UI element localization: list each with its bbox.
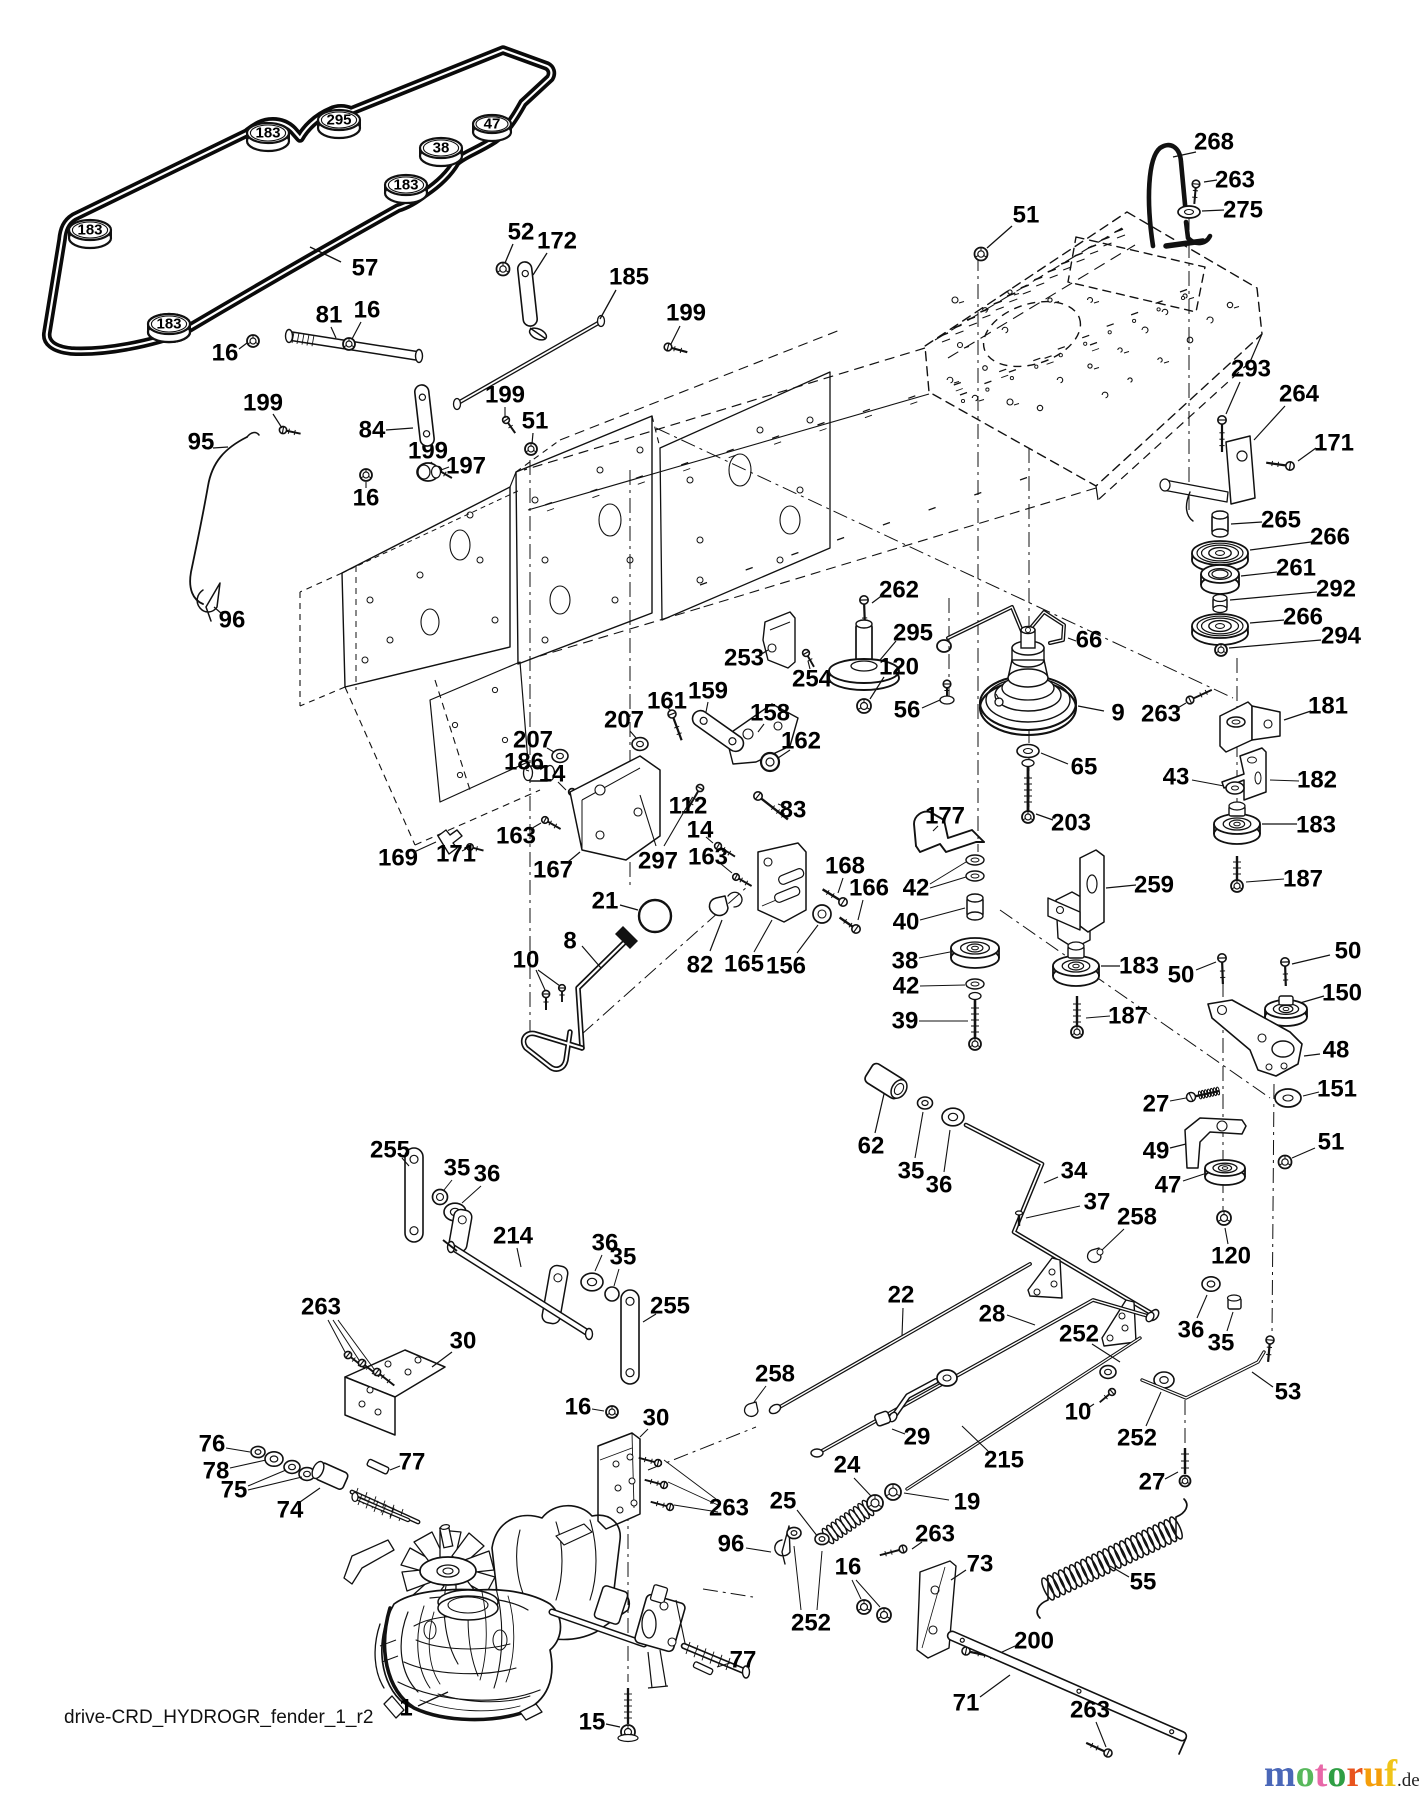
- svg-text:172: 172: [537, 228, 577, 255]
- svg-text:177: 177: [925, 803, 965, 830]
- svg-text:252: 252: [1059, 1321, 1099, 1348]
- svg-text:167: 167: [533, 857, 573, 884]
- svg-text:182: 182: [1297, 767, 1337, 794]
- svg-text:16: 16: [353, 485, 380, 512]
- svg-text:35: 35: [898, 1158, 925, 1185]
- svg-text:258: 258: [1117, 1204, 1157, 1231]
- svg-text:34: 34: [1061, 1158, 1088, 1185]
- svg-text:74: 74: [277, 1497, 304, 1524]
- svg-text:120: 120: [1211, 1243, 1251, 1270]
- svg-text:62: 62: [858, 1133, 885, 1160]
- svg-text:150: 150: [1322, 980, 1362, 1007]
- svg-text:252: 252: [1117, 1425, 1157, 1452]
- svg-text:183: 183: [77, 222, 102, 239]
- svg-text:28: 28: [979, 1301, 1006, 1328]
- svg-text:187: 187: [1108, 1003, 1148, 1030]
- svg-text:214: 214: [493, 1223, 534, 1250]
- svg-text:168: 168: [825, 853, 865, 880]
- svg-text:265: 265: [1261, 507, 1301, 534]
- svg-text:266: 266: [1310, 524, 1350, 551]
- svg-text:81: 81: [316, 302, 343, 329]
- svg-text:263: 263: [1141, 701, 1181, 728]
- svg-text:50: 50: [1168, 962, 1195, 989]
- svg-text:48: 48: [1323, 1037, 1350, 1064]
- svg-text:53: 53: [1275, 1379, 1302, 1406]
- svg-text:197: 197: [446, 453, 486, 480]
- svg-text:199: 199: [243, 390, 283, 417]
- svg-text:261: 261: [1276, 555, 1316, 582]
- svg-text:183: 183: [255, 125, 280, 142]
- svg-text:156: 156: [766, 953, 806, 980]
- svg-text:16: 16: [835, 1554, 862, 1581]
- svg-text:163: 163: [496, 823, 536, 850]
- svg-text:52: 52: [508, 219, 535, 246]
- svg-text:297: 297: [638, 848, 678, 875]
- svg-text:77: 77: [730, 1647, 757, 1674]
- svg-text:16: 16: [212, 340, 239, 367]
- svg-text:30: 30: [450, 1328, 477, 1355]
- svg-text:motoruf.de: motoruf.de: [1264, 1753, 1420, 1795]
- svg-text:47: 47: [1155, 1172, 1182, 1199]
- svg-text:38: 38: [433, 140, 450, 157]
- svg-text:43: 43: [1163, 764, 1190, 791]
- svg-text:drive-CRD_HYDROGR_fender_1_r2: drive-CRD_HYDROGR_fender_1_r2: [64, 1707, 373, 1728]
- svg-text:16: 16: [565, 1394, 592, 1421]
- svg-text:112: 112: [669, 793, 708, 820]
- svg-text:258: 258: [755, 1361, 795, 1388]
- svg-text:292: 292: [1316, 576, 1356, 603]
- svg-text:293: 293: [1231, 356, 1271, 383]
- svg-text:96: 96: [219, 607, 246, 634]
- svg-text:77: 77: [399, 1449, 426, 1476]
- svg-text:295: 295: [326, 112, 351, 129]
- svg-text:21: 21: [592, 888, 619, 915]
- svg-text:266: 266: [1283, 604, 1323, 631]
- svg-text:55: 55: [1130, 1569, 1157, 1596]
- svg-text:295: 295: [893, 620, 933, 647]
- svg-text:38: 38: [892, 948, 919, 975]
- svg-text:42: 42: [893, 973, 920, 1000]
- svg-text:65: 65: [1071, 754, 1098, 781]
- svg-text:47: 47: [484, 116, 501, 133]
- svg-text:76: 76: [199, 1431, 226, 1458]
- svg-text:14: 14: [687, 817, 714, 844]
- svg-text:181: 181: [1308, 693, 1348, 720]
- svg-text:165: 165: [724, 951, 764, 978]
- svg-text:71: 71: [953, 1690, 980, 1717]
- svg-text:84: 84: [359, 417, 386, 444]
- svg-text:51: 51: [522, 408, 549, 435]
- svg-text:263: 263: [1070, 1697, 1110, 1724]
- svg-text:56: 56: [894, 697, 921, 724]
- svg-text:29: 29: [904, 1424, 931, 1451]
- svg-text:36: 36: [926, 1172, 953, 1199]
- svg-text:25: 25: [770, 1488, 797, 1515]
- svg-text:75: 75: [221, 1477, 248, 1504]
- svg-text:40: 40: [893, 909, 920, 936]
- svg-text:259: 259: [1134, 872, 1174, 899]
- svg-text:294: 294: [1321, 623, 1362, 650]
- svg-text:66: 66: [1076, 627, 1103, 654]
- svg-text:19: 19: [954, 1489, 981, 1516]
- svg-text:171: 171: [1314, 430, 1354, 457]
- svg-text:169: 169: [378, 845, 418, 872]
- svg-text:159: 159: [688, 678, 728, 705]
- svg-text:163: 163: [688, 844, 728, 871]
- svg-text:51: 51: [1318, 1129, 1345, 1156]
- svg-text:255: 255: [370, 1137, 410, 1164]
- svg-text:27: 27: [1139, 1469, 1166, 1496]
- svg-text:51: 51: [1013, 202, 1040, 229]
- svg-text:22: 22: [888, 1282, 915, 1309]
- svg-text:35: 35: [1208, 1330, 1235, 1357]
- svg-text:187: 187: [1283, 866, 1323, 893]
- svg-text:263: 263: [915, 1521, 955, 1548]
- svg-text:183: 183: [1119, 953, 1159, 980]
- svg-text:158: 158: [750, 700, 790, 727]
- svg-text:57: 57: [352, 255, 379, 282]
- svg-text:95: 95: [188, 429, 215, 456]
- svg-text:39: 39: [892, 1008, 919, 1035]
- svg-text:49: 49: [1143, 1138, 1170, 1165]
- svg-text:262: 262: [879, 577, 919, 604]
- svg-text:15: 15: [579, 1709, 606, 1736]
- svg-text:252: 252: [791, 1610, 831, 1637]
- svg-text:254: 254: [792, 666, 833, 693]
- svg-text:83: 83: [780, 797, 807, 824]
- svg-text:1: 1: [399, 1695, 412, 1722]
- svg-text:275: 275: [1223, 197, 1263, 224]
- svg-text:36: 36: [1178, 1317, 1205, 1344]
- svg-text:199: 199: [666, 300, 706, 327]
- svg-text:207: 207: [604, 707, 644, 734]
- svg-text:10: 10: [1065, 1399, 1092, 1426]
- svg-text:185: 185: [609, 264, 649, 291]
- svg-text:16: 16: [354, 297, 381, 324]
- svg-text:8: 8: [563, 928, 576, 955]
- svg-text:35: 35: [610, 1244, 637, 1271]
- svg-text:171: 171: [436, 841, 476, 868]
- svg-text:35: 35: [444, 1155, 471, 1182]
- svg-text:263: 263: [301, 1294, 341, 1321]
- svg-text:36: 36: [474, 1161, 501, 1188]
- svg-text:42: 42: [903, 875, 930, 902]
- svg-text:183: 183: [1296, 812, 1336, 839]
- svg-text:73: 73: [967, 1551, 994, 1578]
- svg-text:161: 161: [647, 688, 687, 715]
- svg-text:215: 215: [984, 1447, 1024, 1474]
- svg-text:183: 183: [156, 316, 181, 333]
- svg-text:82: 82: [687, 952, 714, 979]
- svg-text:27: 27: [1143, 1091, 1170, 1118]
- svg-text:24: 24: [834, 1452, 861, 1479]
- svg-text:203: 203: [1051, 810, 1091, 837]
- svg-text:253: 253: [724, 645, 764, 672]
- svg-text:9: 9: [1111, 700, 1124, 727]
- svg-text:183: 183: [393, 177, 418, 194]
- svg-text:162: 162: [781, 728, 821, 755]
- svg-text:268: 268: [1194, 129, 1234, 156]
- svg-text:10: 10: [513, 947, 540, 974]
- svg-text:199: 199: [485, 382, 525, 409]
- svg-text:200: 200: [1014, 1628, 1054, 1655]
- svg-text:96: 96: [718, 1531, 745, 1558]
- svg-text:263: 263: [1215, 167, 1255, 194]
- svg-text:120: 120: [879, 654, 919, 681]
- svg-text:37: 37: [1084, 1189, 1111, 1216]
- svg-text:151: 151: [1317, 1076, 1357, 1103]
- svg-text:30: 30: [643, 1405, 670, 1432]
- svg-text:264: 264: [1279, 381, 1320, 408]
- svg-text:14: 14: [539, 761, 566, 788]
- svg-text:50: 50: [1335, 938, 1362, 965]
- svg-text:255: 255: [650, 1293, 690, 1320]
